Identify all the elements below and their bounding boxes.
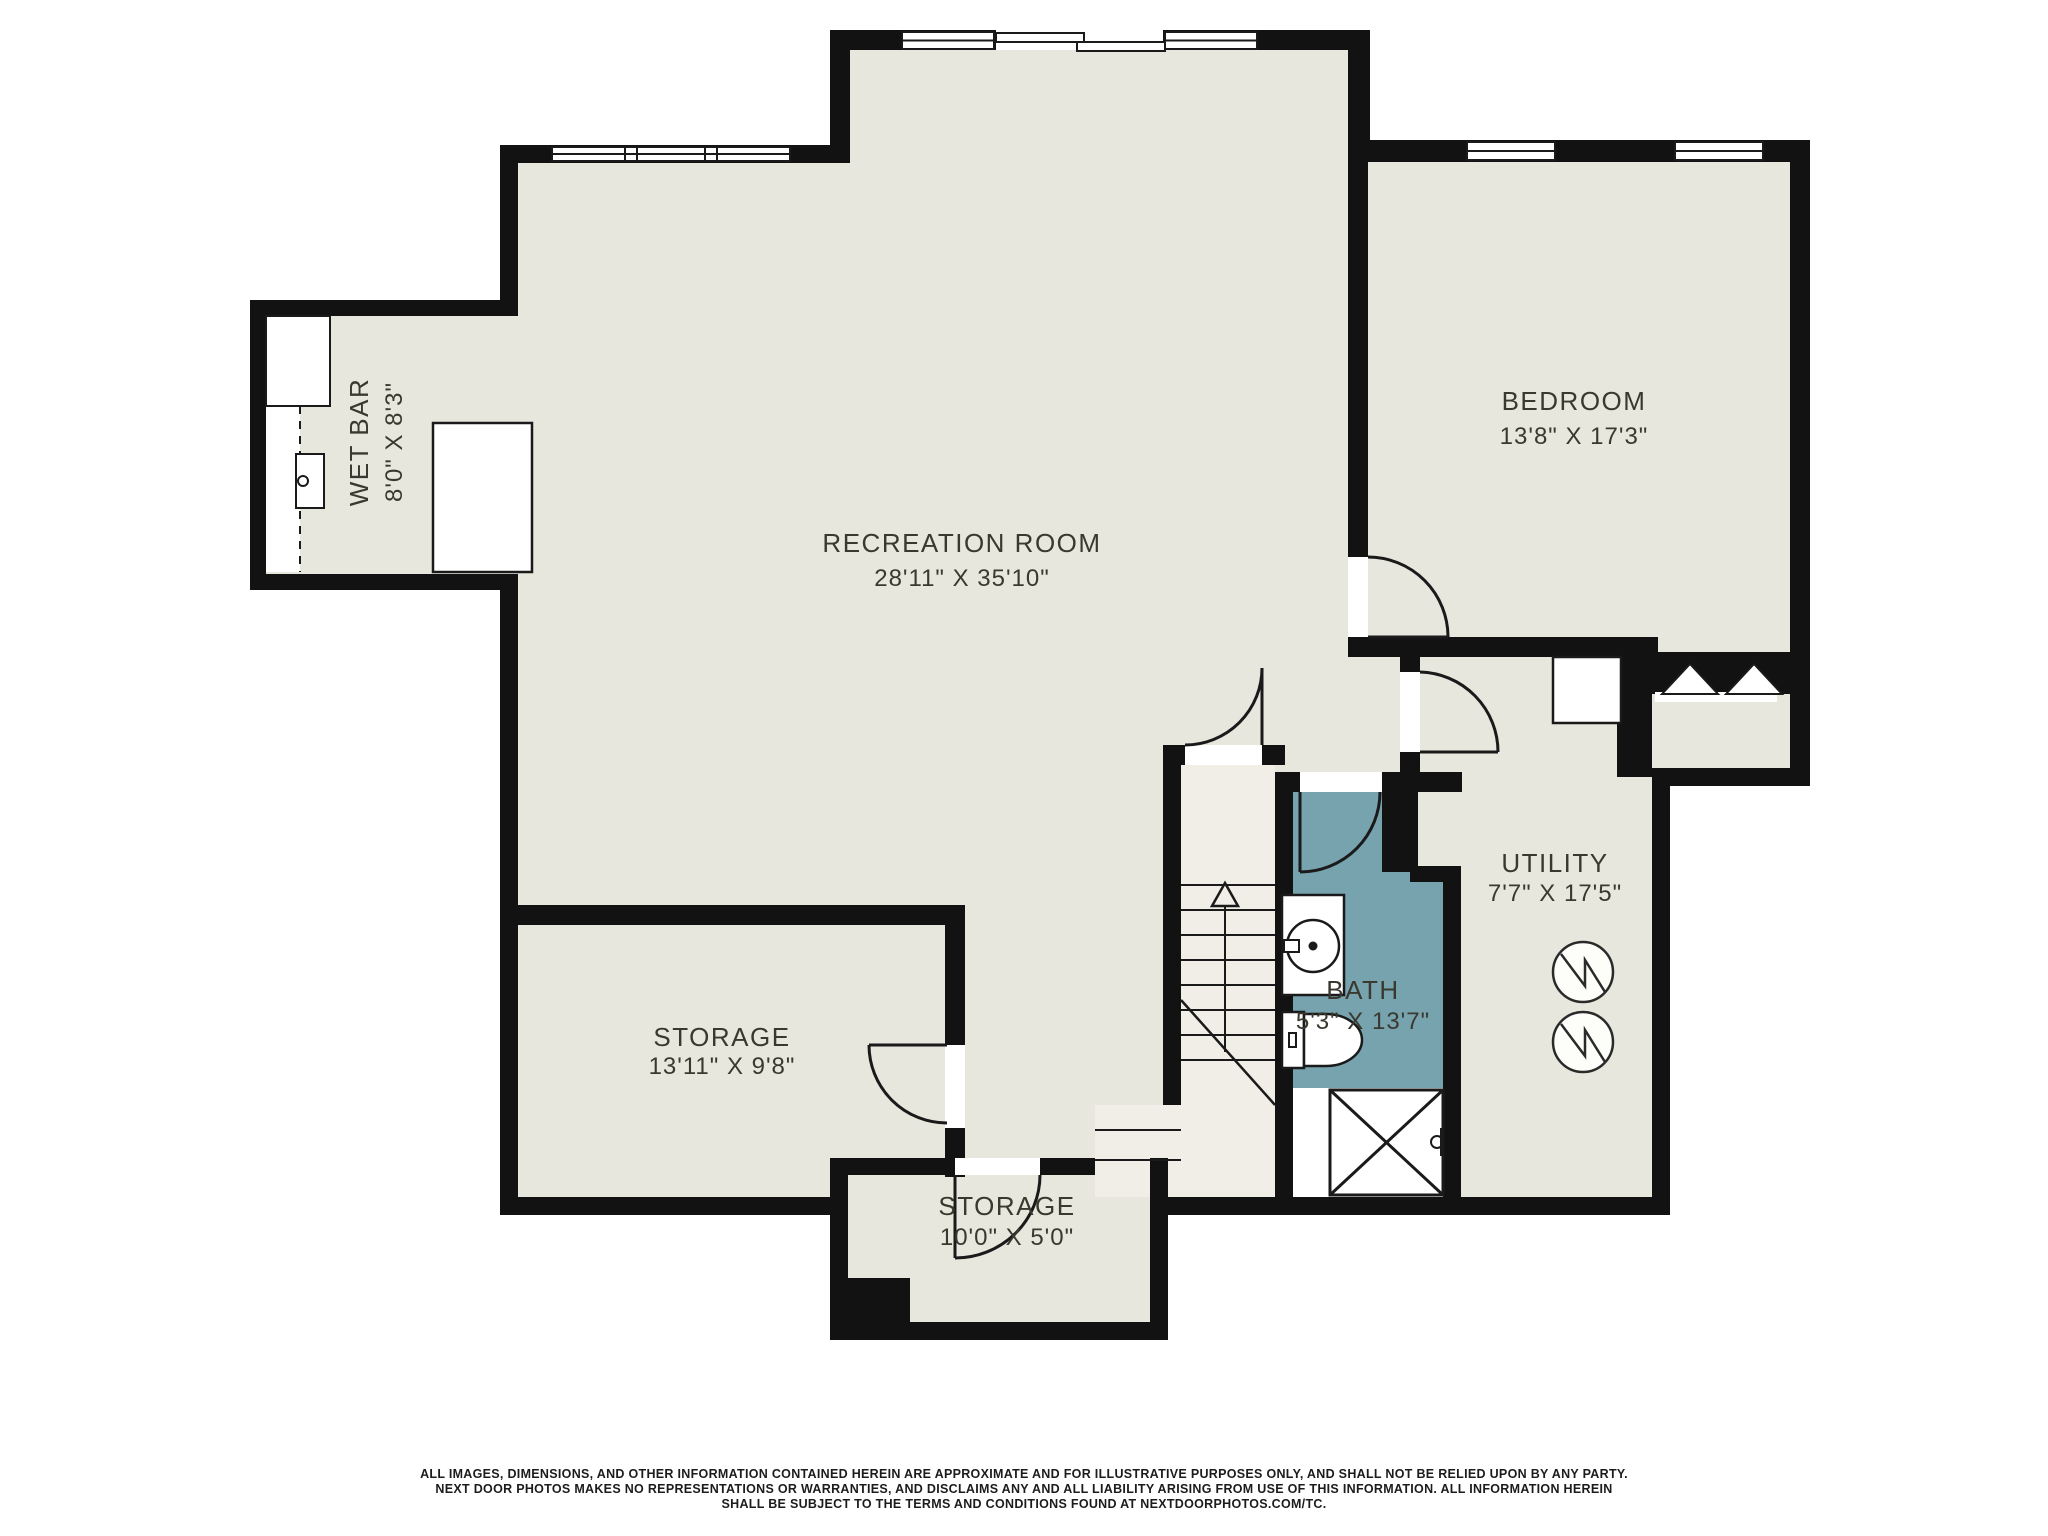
disclaimer-line-3: SHALL BE SUBJECT TO THE TERMS AND CONDIT…	[722, 1497, 1327, 1511]
stair-landing-floor	[1095, 1105, 1181, 1197]
bedroom-dims: 13'8" X 17'3"	[1500, 423, 1649, 450]
furnace-icon	[1553, 1012, 1613, 1072]
floorplan-page: RECREATION ROOM 28'11" X 35'10" BEDROOM …	[0, 0, 2048, 1536]
storage-lower-label: STORAGE	[938, 1191, 1075, 1221]
storage-dims: 13'11" X 9'8"	[649, 1053, 796, 1080]
wetbar-counter-icon	[266, 316, 330, 406]
wet-bar-label: WET BAR	[344, 378, 374, 506]
floorplan-drawing: RECREATION ROOM 28'11" X 35'10" BEDROOM …	[0, 0, 2048, 1536]
utility-dims: 7'7" X 17'5"	[1488, 880, 1622, 907]
recreation-room-label: RECREATION ROOM	[822, 528, 1101, 558]
bar-island-icon	[433, 423, 532, 572]
sliding-door-icon	[1077, 42, 1165, 51]
door-gap	[1185, 745, 1262, 765]
chase-box	[1553, 657, 1621, 723]
bedroom-label: BEDROOM	[1502, 386, 1647, 416]
wet-bar-dims: 8'0" X 8'3"	[381, 382, 408, 502]
water-heater-icon	[1553, 942, 1613, 1002]
door-gap	[955, 1158, 1040, 1175]
bath-label: BATH	[1326, 975, 1399, 1005]
disclaimer-line-1: ALL IMAGES, DIMENSIONS, AND OTHER INFORM…	[420, 1467, 1628, 1481]
stairwell-floor	[1181, 765, 1275, 1197]
storage-label: STORAGE	[653, 1022, 790, 1052]
door-gap	[1400, 672, 1420, 752]
bath-dims: 5'3" X 13'7"	[1296, 1008, 1430, 1035]
storage-lower-dims: 10'0" X 5'0"	[940, 1224, 1074, 1251]
utility-label: UTILITY	[1501, 848, 1608, 878]
sliding-door-icon	[996, 33, 1084, 42]
door-gap	[1300, 772, 1382, 792]
disclaimer: ALL IMAGES, DIMENSIONS, AND OTHER INFORM…	[420, 1467, 1628, 1511]
recreation-room-dims: 28'11" X 35'10"	[874, 565, 1050, 592]
disclaimer-line-2: NEXT DOOR PHOTOS MAKES NO REPRESENTATION…	[435, 1482, 1612, 1496]
door-gap	[945, 1045, 965, 1128]
door-gap	[1348, 557, 1368, 637]
